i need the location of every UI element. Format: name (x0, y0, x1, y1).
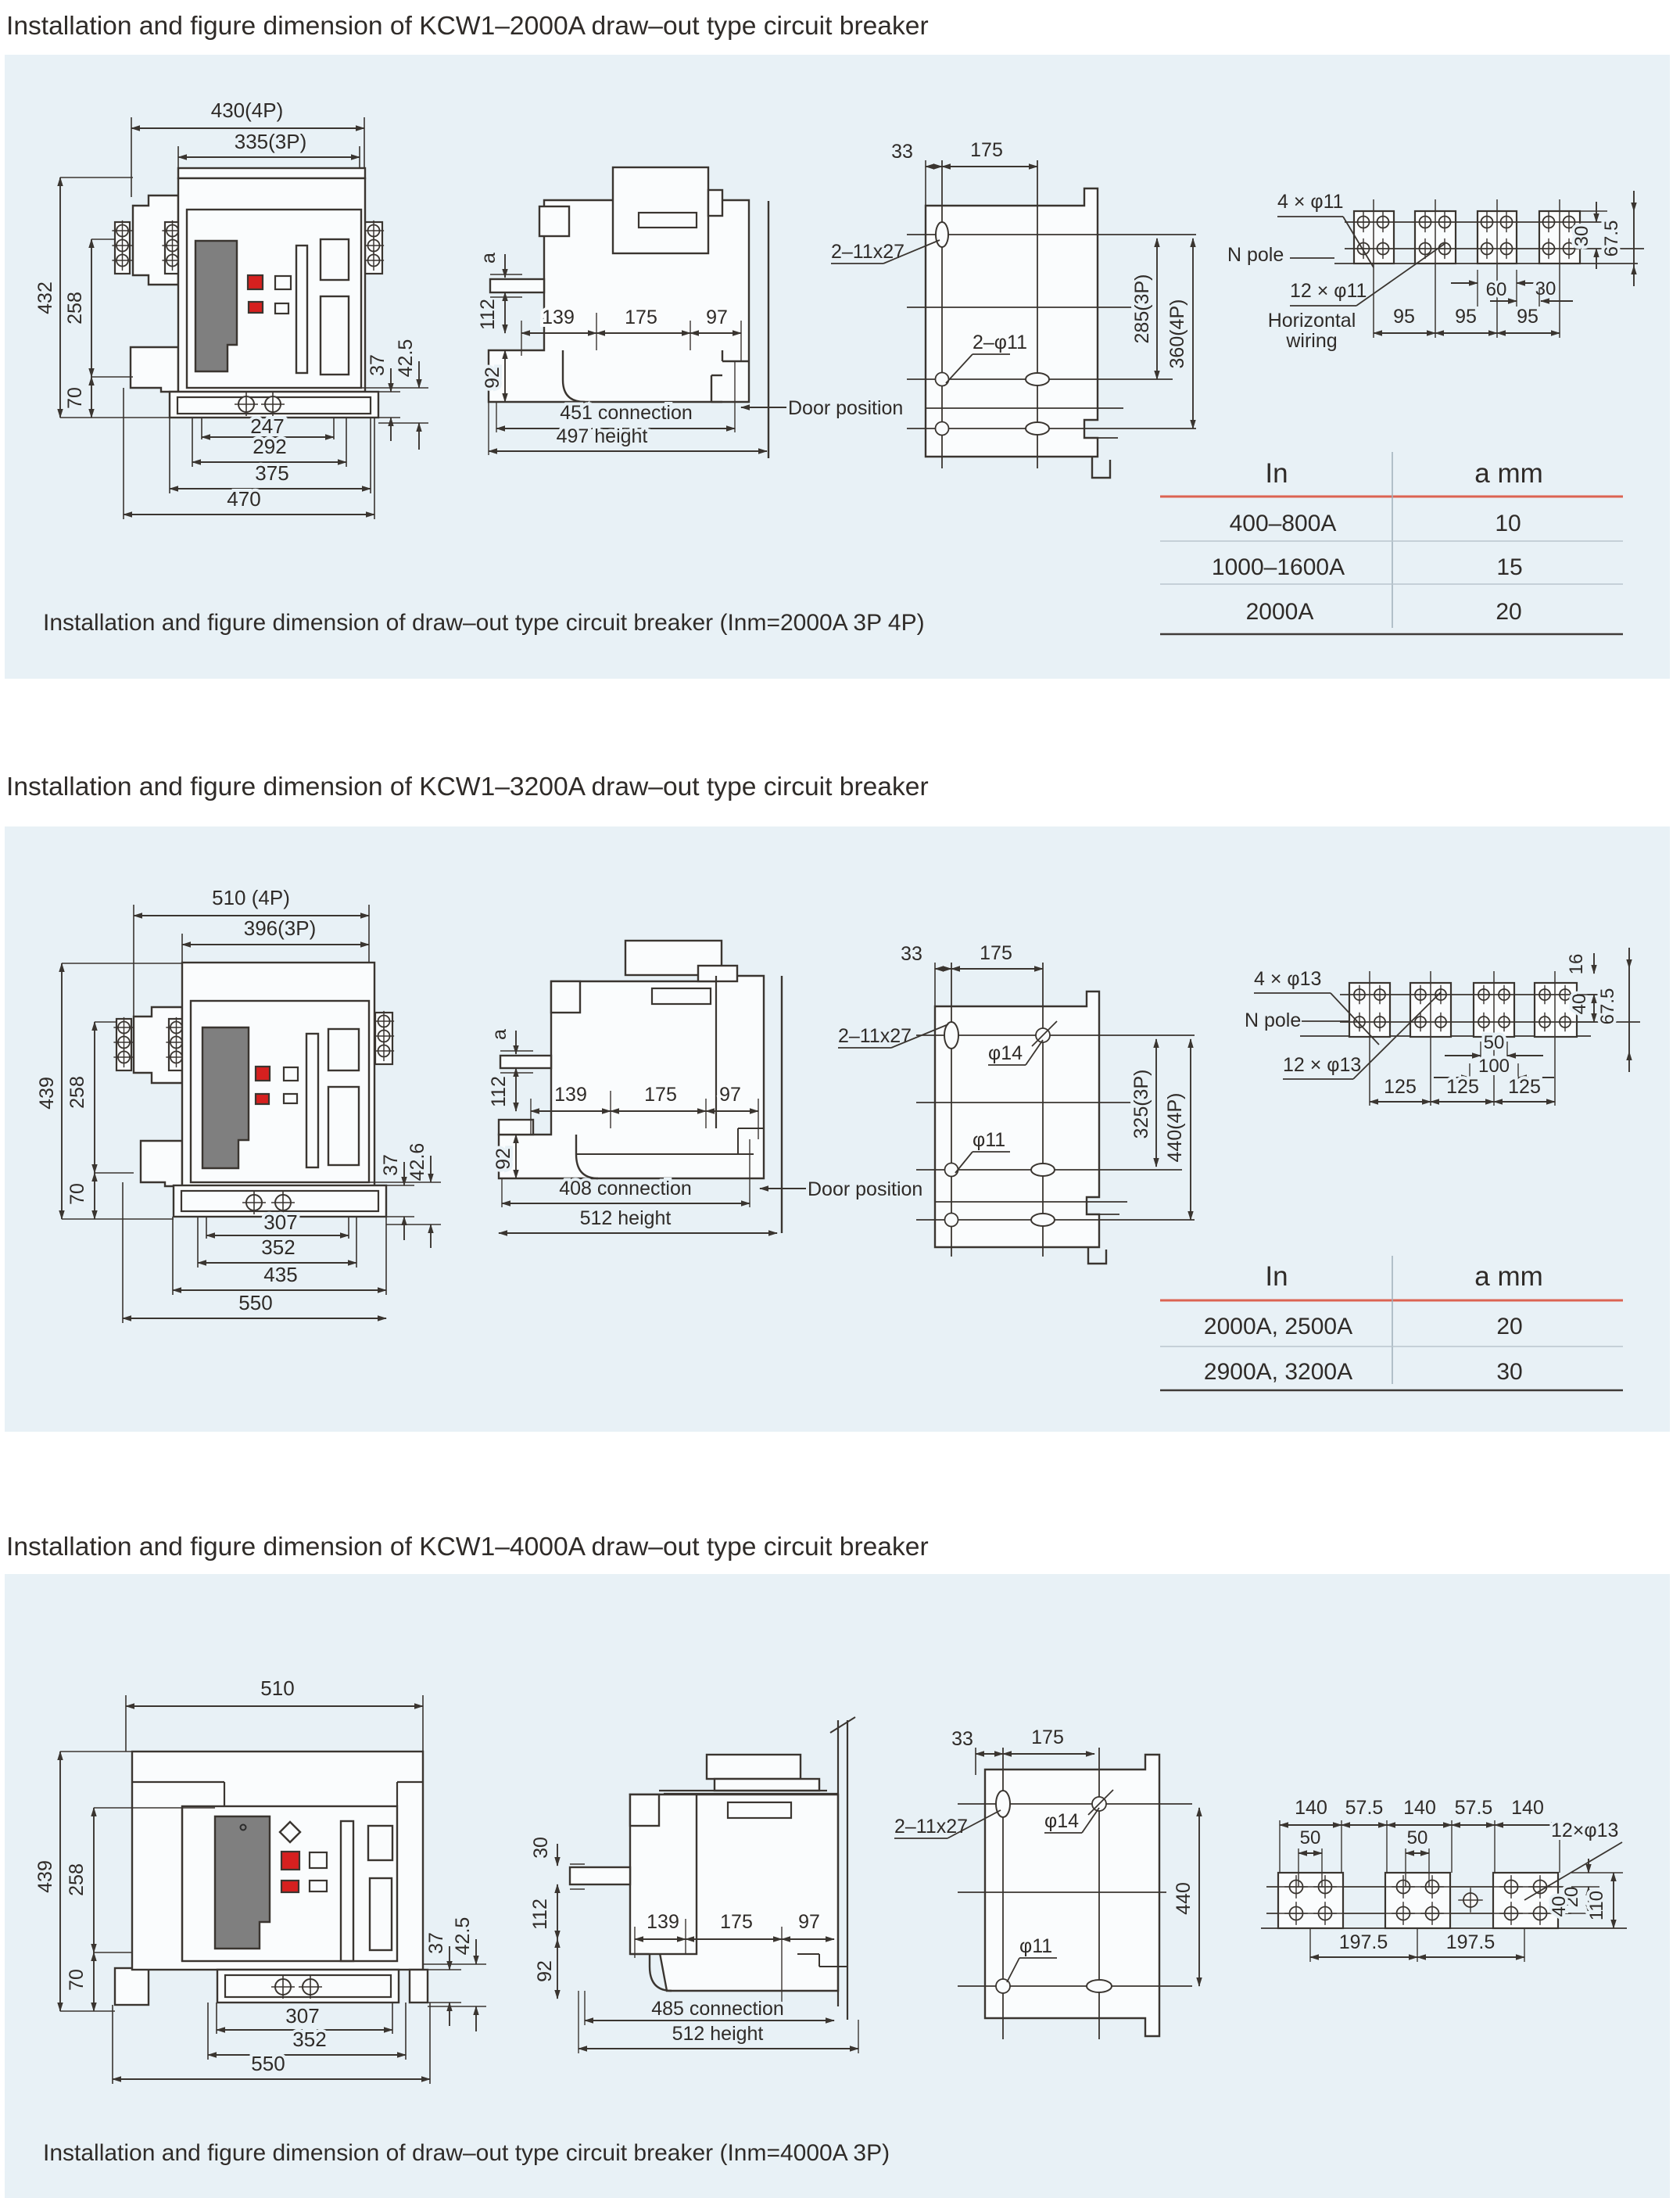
svg-text:33: 33 (891, 141, 913, 163)
svg-text:432: 432 (34, 281, 56, 314)
svg-text:97: 97 (798, 1911, 820, 1933)
svg-text:435: 435 (263, 1263, 297, 1286)
svg-text:175: 175 (1031, 1726, 1064, 1748)
svg-text:92: 92 (493, 1148, 514, 1170)
svg-text:175: 175 (970, 139, 1003, 161)
svg-text:12×φ13: 12×φ13 (1551, 1820, 1618, 1841)
svg-text:140: 140 (1403, 1797, 1436, 1819)
svg-text:42.5: 42.5 (395, 339, 417, 378)
svg-text:4 × φ11: 4 × φ11 (1277, 191, 1344, 213)
svg-text:550: 550 (251, 2052, 285, 2075)
svg-text:400–800A: 400–800A (1230, 511, 1337, 536)
svg-text:485 connection: 485 connection (651, 1998, 784, 2020)
svg-text:258: 258 (66, 1076, 88, 1109)
svg-text:335(3P): 335(3P) (235, 130, 307, 153)
svg-text:2000A, 2500A: 2000A, 2500A (1204, 1314, 1352, 1339)
svg-text:20: 20 (1496, 599, 1521, 625)
svg-text:360(4P): 360(4P) (1166, 299, 1188, 369)
svg-text:In: In (1265, 1261, 1288, 1292)
svg-text:12 × φ13: 12 × φ13 (1283, 1054, 1361, 1076)
svg-text:a mm: a mm (1474, 458, 1543, 489)
svg-text:33: 33 (951, 1728, 973, 1750)
svg-text:550: 550 (238, 1291, 272, 1314)
svg-text:100: 100 (1478, 1056, 1510, 1077)
svg-text:2–11x27: 2–11x27 (894, 1816, 968, 1838)
svg-text:50: 50 (1484, 1032, 1505, 1053)
svg-text:2–φ11: 2–φ11 (973, 332, 1027, 353)
svg-text:95: 95 (1455, 306, 1477, 328)
svg-text:15: 15 (1496, 554, 1522, 580)
svg-text:4 × φ13: 4 × φ13 (1254, 968, 1321, 990)
svg-text:439: 439 (34, 1860, 56, 1893)
svg-text:175: 175 (644, 1084, 677, 1106)
svg-text:125: 125 (1384, 1076, 1417, 1098)
svg-text:95: 95 (1393, 306, 1415, 328)
svg-text:30: 30 (1535, 278, 1556, 299)
svg-text:440: 440 (1173, 1882, 1195, 1915)
svg-text:97: 97 (719, 1084, 741, 1106)
svg-text:67.5: 67.5 (1601, 221, 1622, 257)
svg-text:95: 95 (1517, 306, 1539, 328)
svg-text:430(4P): 430(4P) (211, 99, 284, 122)
svg-text:139: 139 (542, 307, 575, 328)
svg-text:70: 70 (66, 1183, 88, 1205)
svg-text:33: 33 (901, 943, 922, 965)
svg-text:307: 307 (263, 1210, 297, 1234)
svg-text:112: 112 (477, 299, 499, 330)
svg-text:Horizontal: Horizontal (1268, 310, 1356, 332)
svg-text:258: 258 (66, 1863, 88, 1896)
svg-text:139: 139 (647, 1911, 679, 1933)
svg-text:a: a (489, 1029, 510, 1040)
svg-text:2000A: 2000A (1246, 599, 1314, 625)
svg-text:110: 110 (1586, 1891, 1607, 1920)
svg-text:451 connection: 451 connection (560, 402, 693, 424)
svg-text:φ14: φ14 (1044, 1810, 1079, 1832)
svg-text:175: 175 (625, 307, 657, 328)
svg-text:42.5: 42.5 (452, 1917, 474, 1956)
svg-text:67.5: 67.5 (1597, 988, 1618, 1025)
svg-text:a: a (478, 253, 500, 264)
svg-text:510 (4P): 510 (4P) (212, 886, 290, 909)
svg-text:70: 70 (64, 387, 86, 409)
svg-text:57.5: 57.5 (1345, 1797, 1384, 1819)
svg-text:Installation and figure dimens: Installation and figure dimension of dra… (43, 610, 925, 636)
svg-text:37: 37 (367, 354, 389, 376)
svg-text:57.5: 57.5 (1455, 1797, 1493, 1819)
svg-text:60: 60 (1486, 279, 1507, 300)
svg-text:37: 37 (380, 1154, 402, 1176)
svg-text:92: 92 (534, 1960, 556, 1982)
svg-text:12 × φ11: 12 × φ11 (1290, 280, 1367, 302)
svg-text:30: 30 (530, 1837, 552, 1859)
svg-text:125: 125 (1446, 1076, 1479, 1098)
svg-text:40: 40 (1569, 994, 1590, 1015)
svg-text:140: 140 (1295, 1797, 1327, 1819)
svg-text:325(3P): 325(3P) (1130, 1070, 1152, 1139)
svg-text:408 connection: 408 connection (559, 1178, 692, 1199)
svg-text:139: 139 (554, 1084, 587, 1106)
svg-text:φ11: φ11 (1019, 1935, 1052, 1957)
svg-text:16: 16 (1566, 954, 1587, 975)
svg-text:512 height: 512 height (580, 1207, 672, 1229)
svg-text:70: 70 (66, 1969, 88, 1991)
svg-text:N pole: N pole (1245, 1009, 1301, 1031)
svg-text:30: 30 (1571, 226, 1592, 247)
svg-text:258: 258 (64, 292, 86, 325)
svg-text:In: In (1265, 458, 1288, 489)
svg-text:439: 439 (36, 1077, 58, 1110)
svg-text:197.5: 197.5 (1446, 1931, 1496, 1953)
svg-text:Door position: Door position (788, 397, 903, 419)
svg-text:375: 375 (255, 461, 288, 485)
svg-text:97: 97 (706, 307, 728, 328)
svg-text:42.6: 42.6 (407, 1143, 428, 1181)
svg-text:352: 352 (261, 1235, 295, 1259)
svg-text:497 height: 497 height (557, 425, 648, 447)
svg-text:175: 175 (980, 942, 1012, 964)
svg-text:wiring: wiring (1285, 330, 1337, 352)
svg-text:N pole: N pole (1227, 244, 1284, 266)
svg-text:140: 140 (1511, 1797, 1544, 1819)
svg-text:396(3P): 396(3P) (244, 916, 317, 940)
svg-text:Door position: Door position (808, 1178, 922, 1200)
svg-text:30: 30 (1496, 1359, 1522, 1385)
svg-text:352: 352 (292, 2028, 326, 2051)
svg-text:φ14: φ14 (988, 1042, 1023, 1064)
svg-text:92: 92 (482, 367, 503, 389)
svg-text:a mm: a mm (1474, 1261, 1543, 1292)
svg-text:2900A, 3200A: 2900A, 3200A (1204, 1359, 1352, 1385)
svg-text:50: 50 (1407, 1827, 1428, 1848)
svg-text:175: 175 (720, 1911, 753, 1933)
svg-text:512 height: 512 height (672, 2023, 764, 2045)
svg-text:φ11: φ11 (973, 1129, 1005, 1151)
svg-text:307: 307 (285, 2004, 319, 2028)
svg-text:112: 112 (529, 1899, 551, 1930)
svg-text:50: 50 (1300, 1827, 1321, 1848)
svg-text:470: 470 (227, 487, 260, 511)
svg-text:285(3P): 285(3P) (1131, 274, 1153, 344)
svg-text:10: 10 (1495, 511, 1521, 536)
svg-text:440(4P): 440(4P) (1164, 1093, 1186, 1163)
svg-text:197.5: 197.5 (1339, 1931, 1388, 1953)
svg-text:40: 40 (1549, 1896, 1570, 1917)
svg-text:510: 510 (260, 1676, 294, 1700)
svg-text:37: 37 (425, 1932, 447, 1954)
svg-text:292: 292 (253, 435, 286, 458)
svg-text:125: 125 (1508, 1076, 1541, 1098)
svg-text:112: 112 (488, 1076, 510, 1107)
svg-text:1000–1600A: 1000–1600A (1212, 554, 1345, 580)
svg-text:20: 20 (1496, 1314, 1522, 1339)
svg-text:Installation and figure dimens: Installation and figure dimension of dra… (43, 2140, 890, 2166)
